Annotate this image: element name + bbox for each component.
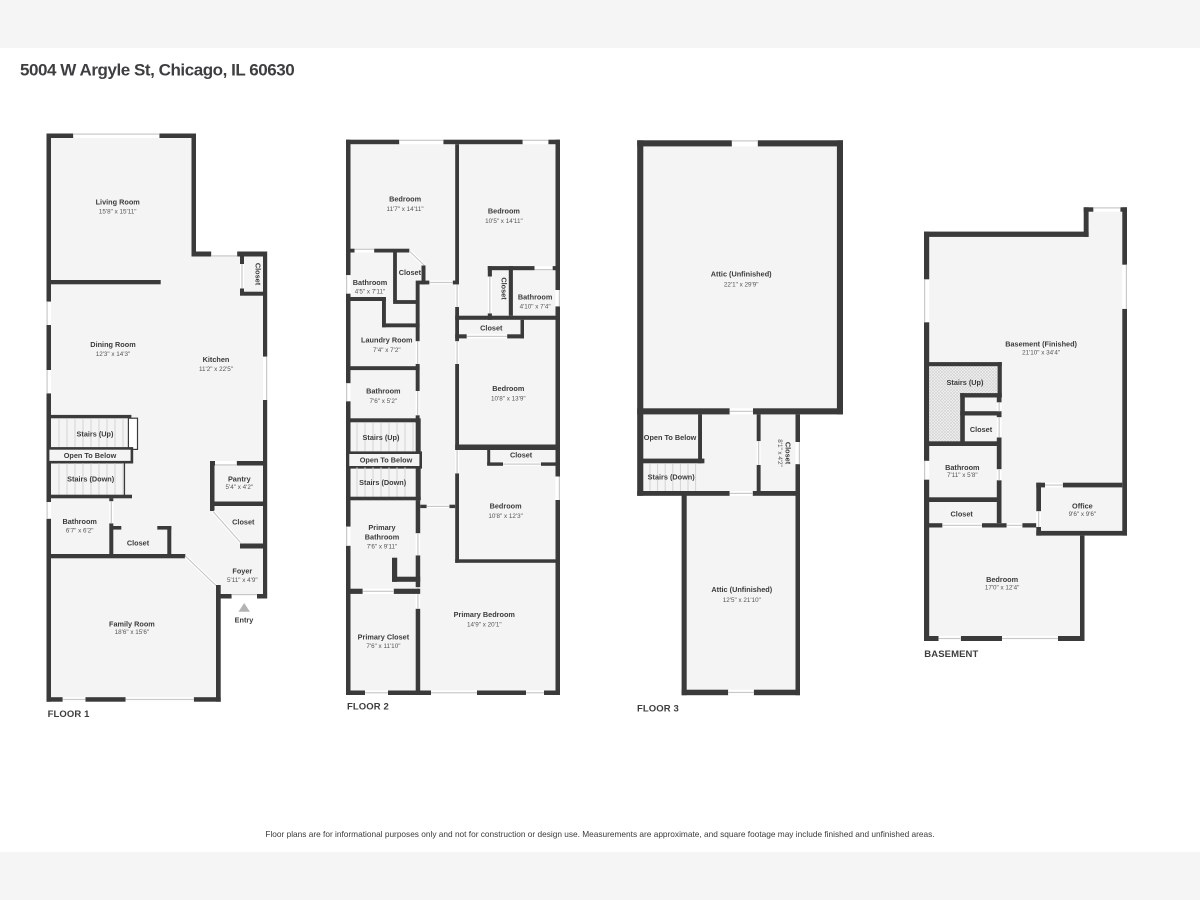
svg-text:Floor plans are for informatio: Floor plans are for informational purpos… <box>265 829 934 839</box>
svg-text:Office: Office <box>1072 501 1093 510</box>
svg-text:FLOOR 1: FLOOR 1 <box>48 709 90 720</box>
svg-text:Closet: Closet <box>127 539 150 548</box>
svg-text:Bathroom: Bathroom <box>945 463 980 472</box>
svg-text:Primary: Primary <box>368 523 396 532</box>
svg-text:Family Room: Family Room <box>109 619 155 628</box>
svg-text:Open To Below: Open To Below <box>360 456 413 465</box>
svg-text:Dining Room: Dining Room <box>90 340 136 349</box>
svg-text:10'8" x 13'9": 10'8" x 13'9" <box>491 396 526 403</box>
svg-text:Primary Bedroom: Primary Bedroom <box>454 610 516 619</box>
svg-text:9'6" x 9'6": 9'6" x 9'6" <box>1069 511 1097 518</box>
svg-text:6'7" x 6'2": 6'7" x 6'2" <box>66 528 94 535</box>
svg-text:4'5" x 7'11": 4'5" x 7'11" <box>355 288 386 295</box>
svg-text:Attic (Unfinished): Attic (Unfinished) <box>711 585 772 594</box>
svg-text:11'7" x 14'11": 11'7" x 14'11" <box>387 206 424 213</box>
svg-text:Closet: Closet <box>480 324 503 333</box>
svg-text:Closet: Closet <box>232 518 255 527</box>
svg-text:Bedroom: Bedroom <box>488 207 521 216</box>
svg-text:Closet: Closet <box>510 451 533 460</box>
svg-text:7'6" x 11'10": 7'6" x 11'10" <box>366 643 400 650</box>
svg-text:Bathroom: Bathroom <box>62 517 97 526</box>
svg-text:Living Room: Living Room <box>96 198 141 207</box>
svg-text:Bathroom: Bathroom <box>353 278 388 287</box>
svg-text:Stairs (Up): Stairs (Up) <box>77 430 114 439</box>
svg-text:Bathroom: Bathroom <box>366 386 401 395</box>
svg-text:Closet: Closet <box>254 263 263 286</box>
svg-text:5'11" x 4'9": 5'11" x 4'9" <box>227 577 258 584</box>
svg-text:12'5" x 21'10": 12'5" x 21'10" <box>723 597 761 604</box>
svg-text:Closet: Closet <box>399 268 422 277</box>
svg-text:7'6" x 5'2": 7'6" x 5'2" <box>370 398 398 405</box>
svg-text:Entry: Entry <box>235 615 255 624</box>
svg-text:10'5" x 14'11": 10'5" x 14'11" <box>485 218 523 225</box>
svg-text:18'6" x 15'6": 18'6" x 15'6" <box>115 629 150 636</box>
svg-text:Pantry: Pantry <box>228 474 252 483</box>
svg-text:Bedroom: Bedroom <box>492 384 525 393</box>
svg-text:Stairs (Down): Stairs (Down) <box>67 475 115 484</box>
svg-text:5'4" x 4'2": 5'4" x 4'2" <box>226 484 254 491</box>
svg-text:22'1" x 29'9": 22'1" x 29'9" <box>724 282 759 289</box>
svg-text:Bathroom: Bathroom <box>518 293 553 302</box>
svg-text:Attic (Unfinished): Attic (Unfinished) <box>711 270 772 279</box>
svg-text:Bedroom: Bedroom <box>490 502 523 511</box>
svg-text:Stairs (Down): Stairs (Down) <box>648 472 696 481</box>
svg-text:Closet: Closet <box>970 425 993 434</box>
svg-text:Open To Below: Open To Below <box>64 451 117 460</box>
svg-text:FLOOR 3: FLOOR 3 <box>637 704 679 715</box>
svg-text:12'3" x 14'3": 12'3" x 14'3" <box>96 351 131 358</box>
svg-text:21'10" x 34'4": 21'10" x 34'4" <box>1022 350 1060 357</box>
svg-text:Stairs (Down): Stairs (Down) <box>359 478 407 487</box>
svg-text:Stairs (Up): Stairs (Up) <box>363 433 400 442</box>
svg-text:Laundry Room: Laundry Room <box>361 336 413 345</box>
svg-text:Primary Closet: Primary Closet <box>358 633 410 642</box>
svg-text:17'0" x 12'4": 17'0" x 12'4" <box>985 584 1020 591</box>
svg-text:4'10" x 7'4": 4'10" x 7'4" <box>520 304 551 311</box>
svg-text:BASEMENT: BASEMENT <box>924 649 978 660</box>
svg-text:7'11" x 5'8": 7'11" x 5'8" <box>947 472 978 479</box>
svg-text:Stairs (Up): Stairs (Up) <box>947 378 984 387</box>
svg-text:Closet: Closet <box>500 277 509 300</box>
svg-text:FLOOR 2: FLOOR 2 <box>347 702 389 713</box>
svg-text:Foyer: Foyer <box>232 567 252 576</box>
svg-text:5004 W Argyle St, Chicago, IL: 5004 W Argyle St, Chicago, IL 60630 <box>20 61 294 80</box>
svg-text:Closet: Closet <box>951 509 974 518</box>
svg-text:Closet: Closet <box>783 442 792 465</box>
svg-text:14'9" x 20'1": 14'9" x 20'1" <box>467 622 502 629</box>
svg-text:11'2" x 22'5": 11'2" x 22'5" <box>199 366 233 373</box>
svg-text:Kitchen: Kitchen <box>203 355 230 364</box>
svg-text:7'6" x 9'11": 7'6" x 9'11" <box>367 543 398 550</box>
svg-text:Bedroom: Bedroom <box>986 575 1019 584</box>
svg-text:Bathroom: Bathroom <box>365 532 400 541</box>
svg-text:Open To Below: Open To Below <box>644 433 697 442</box>
svg-text:7'4" x 7'2": 7'4" x 7'2" <box>373 347 401 354</box>
svg-text:10'8" x 12'3": 10'8" x 12'3" <box>488 513 523 520</box>
svg-text:Bedroom: Bedroom <box>389 195 422 204</box>
svg-text:15'8" x 15'11": 15'8" x 15'11" <box>99 209 137 216</box>
svg-text:8'1" x 4'2": 8'1" x 4'2" <box>776 439 783 467</box>
svg-text:Basement (Finished): Basement (Finished) <box>1005 340 1077 349</box>
